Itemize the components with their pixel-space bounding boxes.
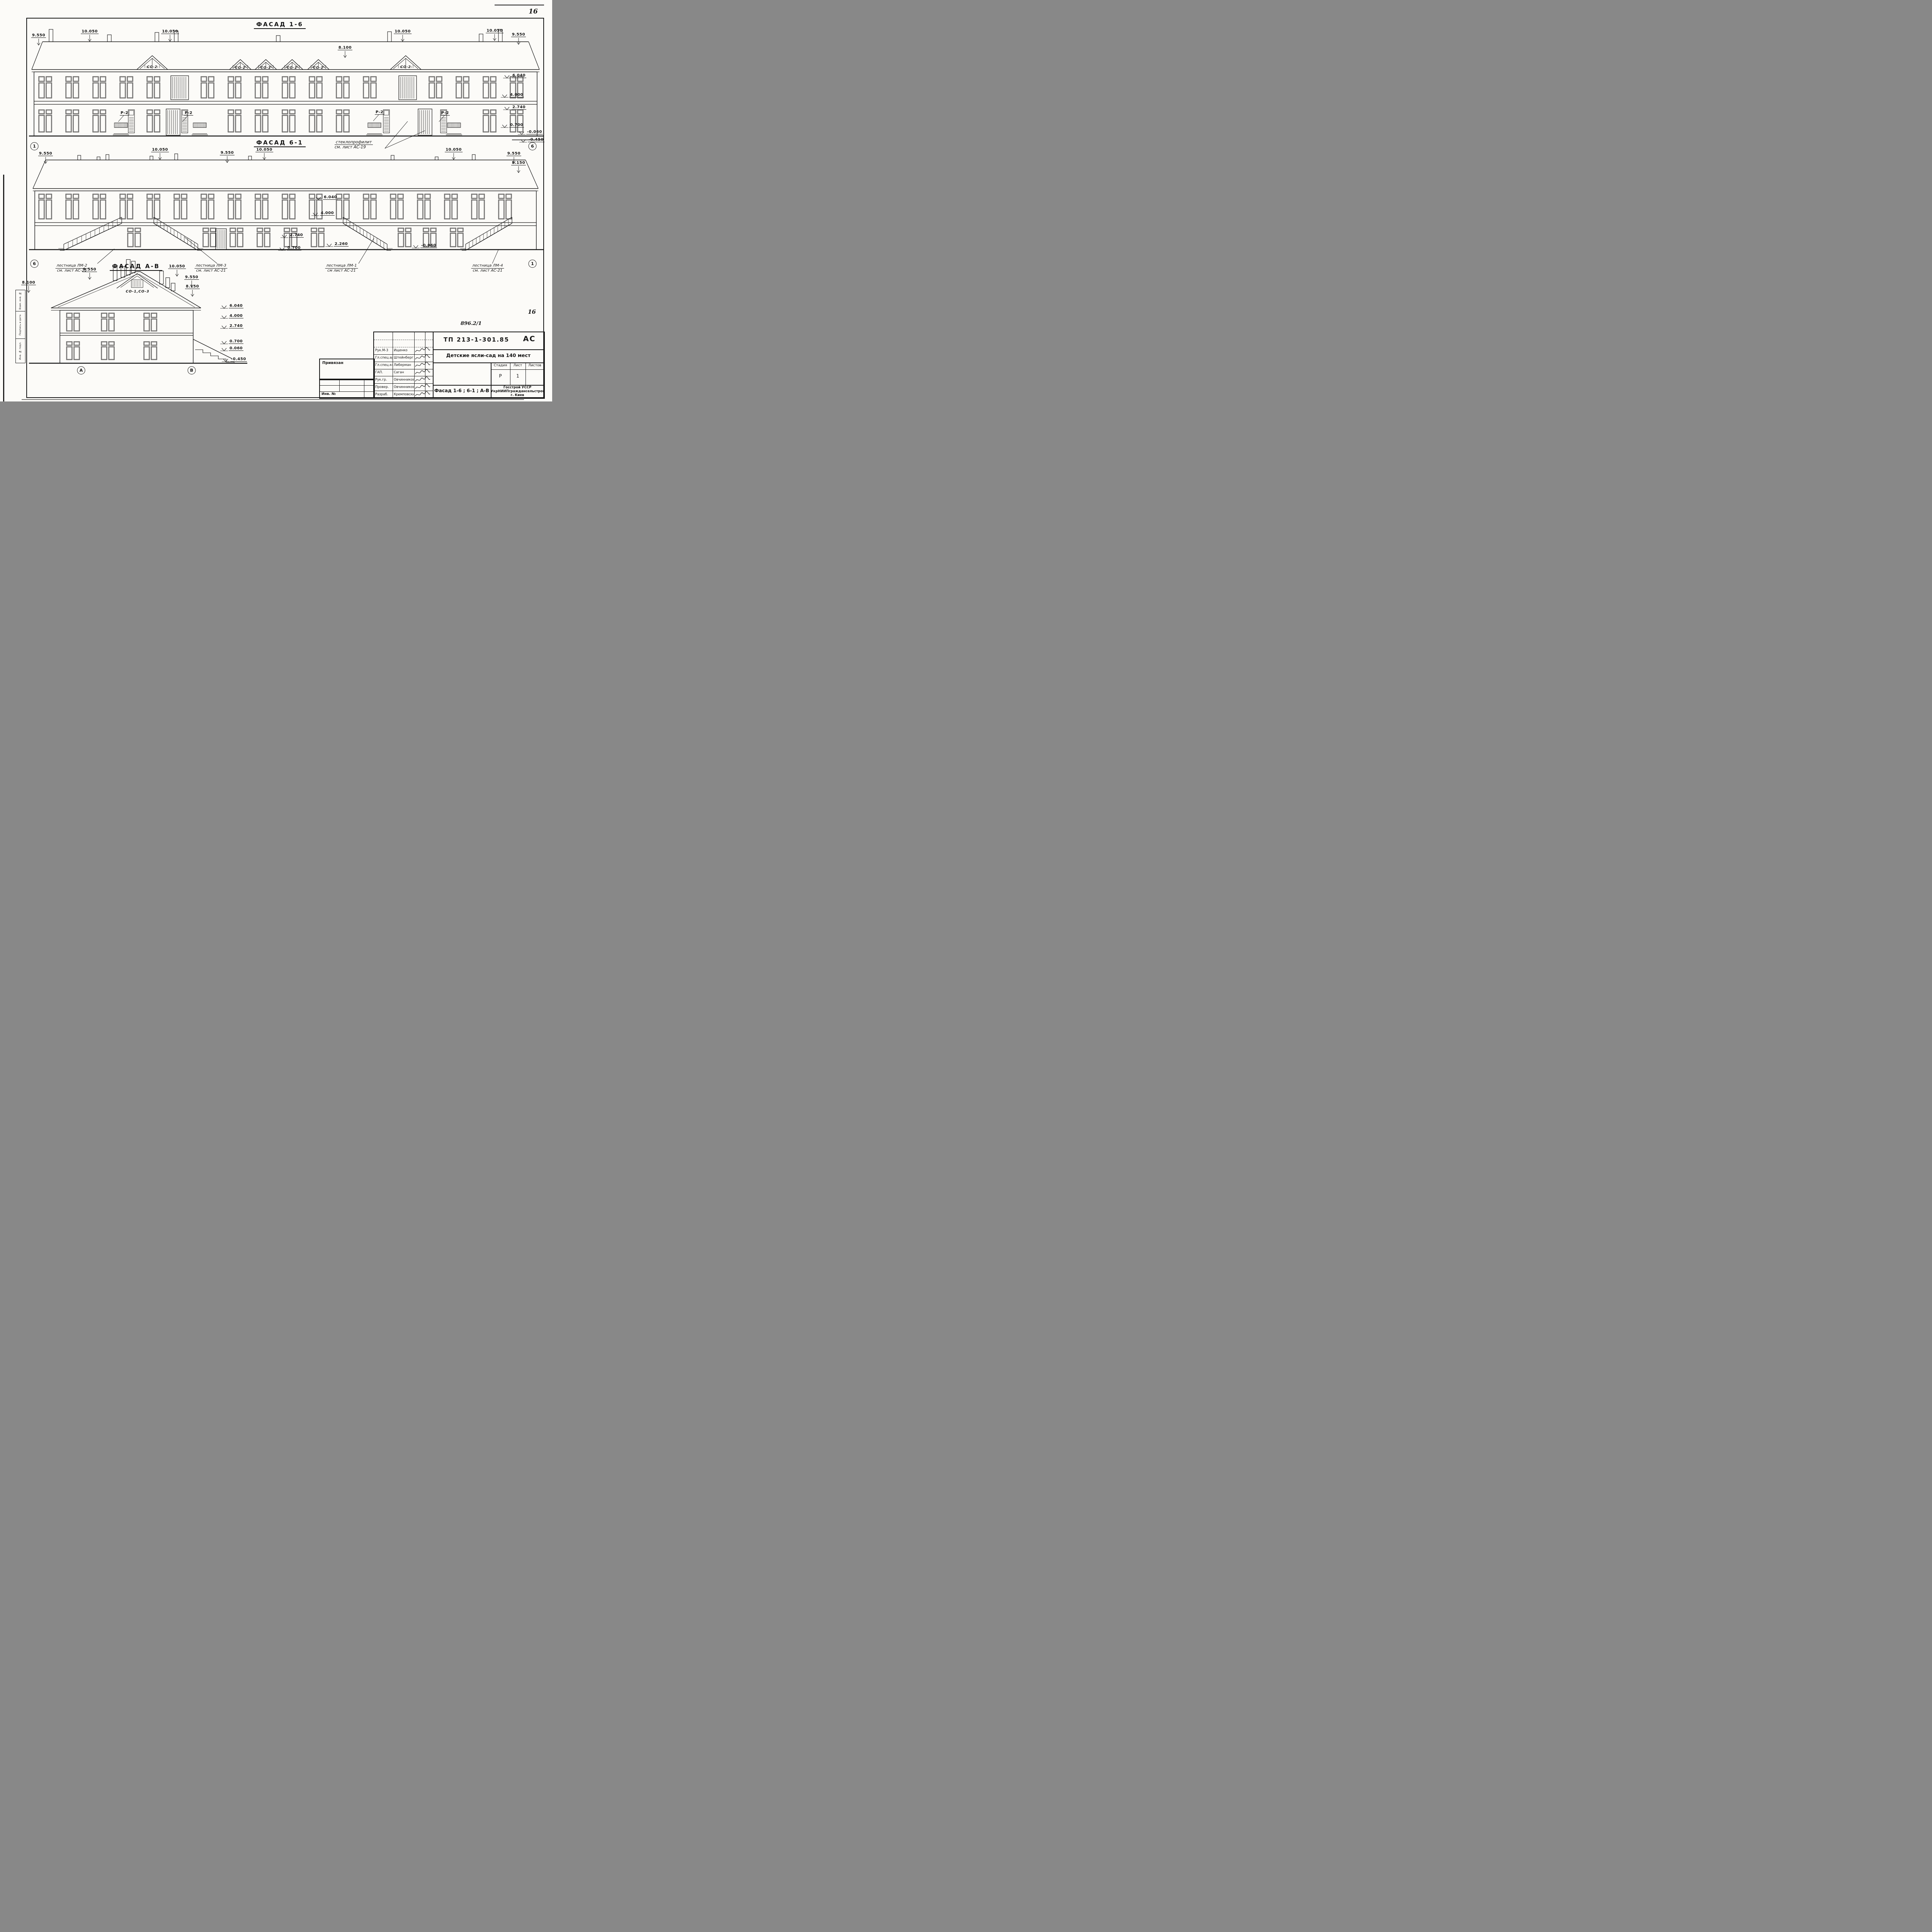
role-name: Ищенко bbox=[394, 347, 414, 354]
role-label: Разраб. bbox=[375, 391, 392, 398]
role-name: Кремповский bbox=[394, 391, 414, 398]
note-line1: стеклопрофилит bbox=[335, 140, 373, 145]
signature-scribble bbox=[414, 354, 431, 362]
elevation-label: 0.700 bbox=[287, 246, 301, 250]
corner-tick bbox=[495, 5, 544, 5]
sheet-title: Фасад 1-6 ; 6-1 ; А-В bbox=[433, 388, 491, 393]
facade-6-1-title: Фасад 6-1 bbox=[254, 139, 306, 147]
side-stamp-inv: Инв. № подл. bbox=[15, 338, 26, 363]
gable-label: СО-2 bbox=[287, 66, 298, 70]
gable-label: СО-2 bbox=[313, 66, 324, 70]
elevation-label: 0.700 bbox=[229, 339, 243, 344]
elevation-label: 0.700 bbox=[509, 123, 524, 128]
dim-label: 8.100 bbox=[338, 46, 352, 50]
window-type-label: Р-2 bbox=[184, 111, 193, 116]
dim-label: 10.050 bbox=[81, 29, 99, 34]
axis-bubble-a: А bbox=[77, 366, 85, 374]
dim-label: 8.100 bbox=[21, 281, 36, 285]
doc-number-handwritten: 896.2/1 bbox=[461, 321, 482, 327]
dim-label: 9.550 bbox=[38, 151, 53, 156]
facade-a-v-title: Фасад А-В bbox=[110, 263, 162, 271]
role-label: Провер. bbox=[375, 384, 392, 391]
role-name: Штейнберг bbox=[394, 354, 414, 362]
window-type-label: Р-2 bbox=[375, 110, 384, 115]
dim-label: 10.050 bbox=[394, 29, 412, 34]
dim-label: 8.150 bbox=[511, 161, 526, 165]
stage-label: Стадия bbox=[491, 364, 510, 367]
doc-type: АС bbox=[518, 335, 541, 343]
glass-profile-note: стеклопрофилит см. лист АС-19 bbox=[335, 140, 373, 150]
dim-label: 10.050 bbox=[161, 29, 179, 34]
scan-edge-artifact bbox=[3, 175, 4, 401]
drawing-sheet: 16 16 896.2/1 Фасад 1-6 Фасад 6-1 Фасад … bbox=[0, 0, 552, 401]
elevation-label: 6.040 bbox=[323, 195, 338, 200]
organization: Госстрой УССР УкрНИИПграждансельстрой г.… bbox=[491, 386, 544, 397]
dim-label: 10.050 bbox=[486, 29, 503, 33]
axis-bubble-1-right: 1 bbox=[529, 260, 537, 268]
role-label: ГАП. bbox=[375, 369, 392, 376]
dim-label: 10.050 bbox=[255, 148, 273, 152]
elevation-label: -0.060 bbox=[526, 130, 543, 134]
facade-1-6-title: Фасад 1-6 bbox=[254, 21, 306, 29]
role-label: Рук.гр. bbox=[375, 376, 392, 384]
dim-label: 8.150 bbox=[185, 284, 200, 289]
elevation-label: 2.740 bbox=[512, 105, 526, 110]
dim-label: 9.550 bbox=[82, 267, 97, 272]
doc-code: ТП 213-1-301.85 bbox=[436, 336, 517, 343]
signature-scribble bbox=[414, 362, 431, 369]
window-type-label: Р-2 bbox=[120, 111, 129, 116]
dim-label: 9.550 bbox=[511, 32, 526, 37]
axis-bubble-v: В bbox=[188, 366, 196, 374]
axis-bubble-6-right: 6 bbox=[529, 142, 537, 150]
role-name: Овчинникова bbox=[394, 384, 414, 391]
title-block: Рук.М-3ИщенкоГл.спец.архШтейнбергГл.спец… bbox=[373, 332, 545, 399]
signature-scribble bbox=[414, 376, 431, 384]
dim-label: 9.550 bbox=[507, 151, 521, 156]
elevation-label: 6.040 bbox=[512, 73, 526, 78]
role-label: Гл.спец.арх bbox=[375, 354, 392, 362]
scan-edge-artifact-bottom bbox=[22, 399, 524, 400]
dim-label: 9.550 bbox=[184, 275, 199, 280]
sheet-label: Лист bbox=[510, 364, 526, 367]
elevation-label: 2.260 bbox=[334, 242, 349, 247]
stair-callout-lm1: лестница ЛМ-1 см лист АС-21 bbox=[325, 264, 358, 273]
axis-bubble-6-left: 6 bbox=[31, 260, 39, 268]
sheet-value: 1 bbox=[510, 373, 526, 379]
axis-bubble-1-left: 1 bbox=[31, 142, 39, 150]
inventory-label: Инв. № bbox=[321, 392, 336, 396]
elevation-label: 4.000 bbox=[320, 211, 335, 216]
page-number-top: 16 bbox=[529, 8, 538, 15]
project-title: Детские ясли-сад на 140 мест bbox=[433, 352, 544, 358]
inventory-grid: Инв. № bbox=[319, 379, 375, 399]
side-stamp-podpis: Подпись и дата bbox=[15, 311, 26, 339]
signature-scribble bbox=[414, 384, 431, 391]
role-name: Саган bbox=[394, 369, 414, 376]
linked-box: Привязан bbox=[319, 359, 375, 380]
stair-callout-lm3: лестница ЛМ-3 см. лист АС-21 bbox=[194, 264, 227, 273]
role-name: Овчинникова bbox=[394, 376, 414, 384]
signature-scribble bbox=[414, 369, 431, 376]
elevation-label: 2.740 bbox=[289, 233, 304, 238]
note-line2: см. лист АС-19 bbox=[335, 145, 366, 150]
signature-scribble bbox=[414, 347, 431, 354]
gable-label: СО-2 bbox=[147, 65, 158, 69]
dim-label: 10.050 bbox=[151, 148, 169, 152]
gable-label: СО-2 bbox=[235, 66, 246, 70]
elevation-label: -0.450 bbox=[528, 138, 544, 142]
elevation-label: 6.040 bbox=[229, 304, 243, 308]
elevation-label: -0.060 bbox=[420, 243, 437, 248]
stair-callout-lm4: лестница ЛМ-4 см. лист АС-21 bbox=[471, 264, 504, 273]
elevation-label: -0.450 bbox=[230, 357, 247, 362]
elevation-label: 4.000 bbox=[509, 93, 524, 97]
elevation-label: 0.060 bbox=[229, 346, 243, 351]
window-type-label: Р-2 bbox=[440, 111, 450, 116]
elevation-label: 2.740 bbox=[229, 324, 243, 328]
signature-scribble bbox=[414, 391, 431, 398]
elevation-label: 4.000 bbox=[229, 314, 243, 318]
sheets-label: Листов bbox=[526, 364, 544, 367]
gable-label: СО-2 bbox=[401, 65, 411, 69]
role-label: Гл.спец.кон bbox=[375, 362, 392, 369]
dim-label: 10.050 bbox=[168, 264, 186, 269]
stage-value: Р bbox=[491, 373, 510, 379]
role-label: Рук.М-3 bbox=[375, 347, 392, 354]
role-name: Либерман bbox=[394, 362, 414, 369]
dim-label: 9.550 bbox=[31, 33, 46, 38]
page-number-bottom: 16 bbox=[528, 308, 536, 315]
gable-label-av: СО-1,СО-3 bbox=[126, 290, 150, 294]
side-stamp-vzam: Взам. инв. № bbox=[15, 290, 26, 311]
dim-label: 9.550 bbox=[220, 151, 235, 155]
dim-label: 10.050 bbox=[445, 148, 463, 152]
gable-label: СО-2 bbox=[261, 66, 271, 70]
